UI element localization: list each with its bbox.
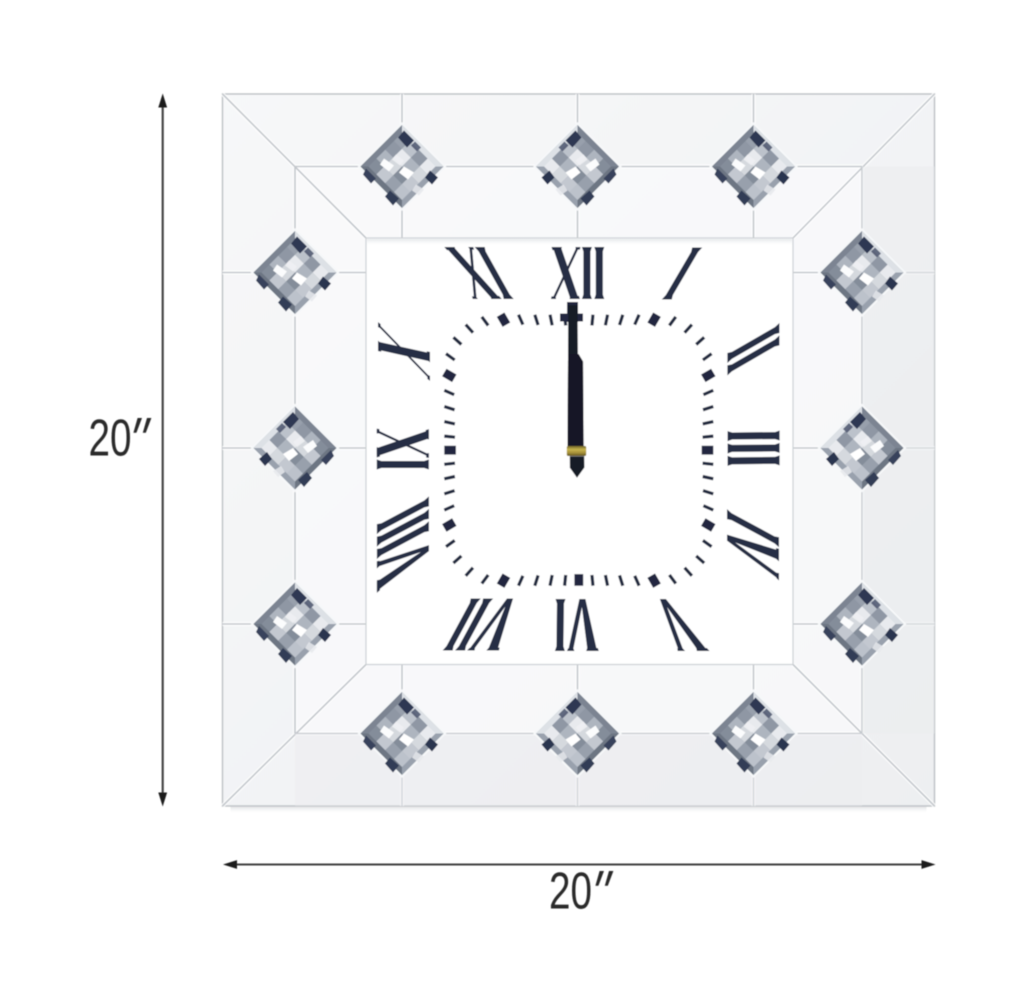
svg-text:20: 20 (89, 410, 132, 468)
svg-text:20: 20 (549, 863, 592, 921)
